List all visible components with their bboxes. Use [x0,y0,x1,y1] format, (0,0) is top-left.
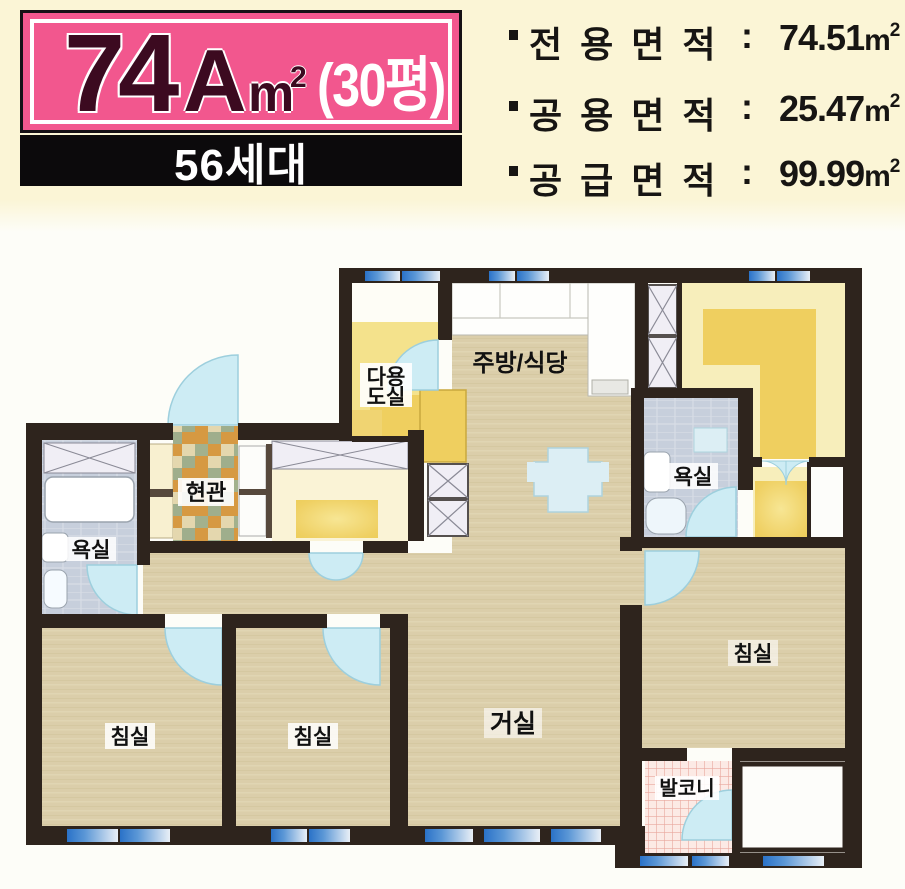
svg-text:도실: 도실 [367,386,406,409]
svg-text:욕실: 욕실 [72,539,111,562]
svg-text:현관: 현관 [186,480,226,505]
svg-text:거실: 거실 [490,710,536,738]
svg-text:욕실: 욕실 [674,466,713,489]
svg-text:침실: 침실 [111,726,150,749]
svg-text:발코니: 발코니 [659,777,714,800]
svg-text:침실: 침실 [734,643,773,666]
svg-text:주방/식당: 주방/식당 [473,350,568,377]
svg-text:침실: 침실 [294,726,333,749]
